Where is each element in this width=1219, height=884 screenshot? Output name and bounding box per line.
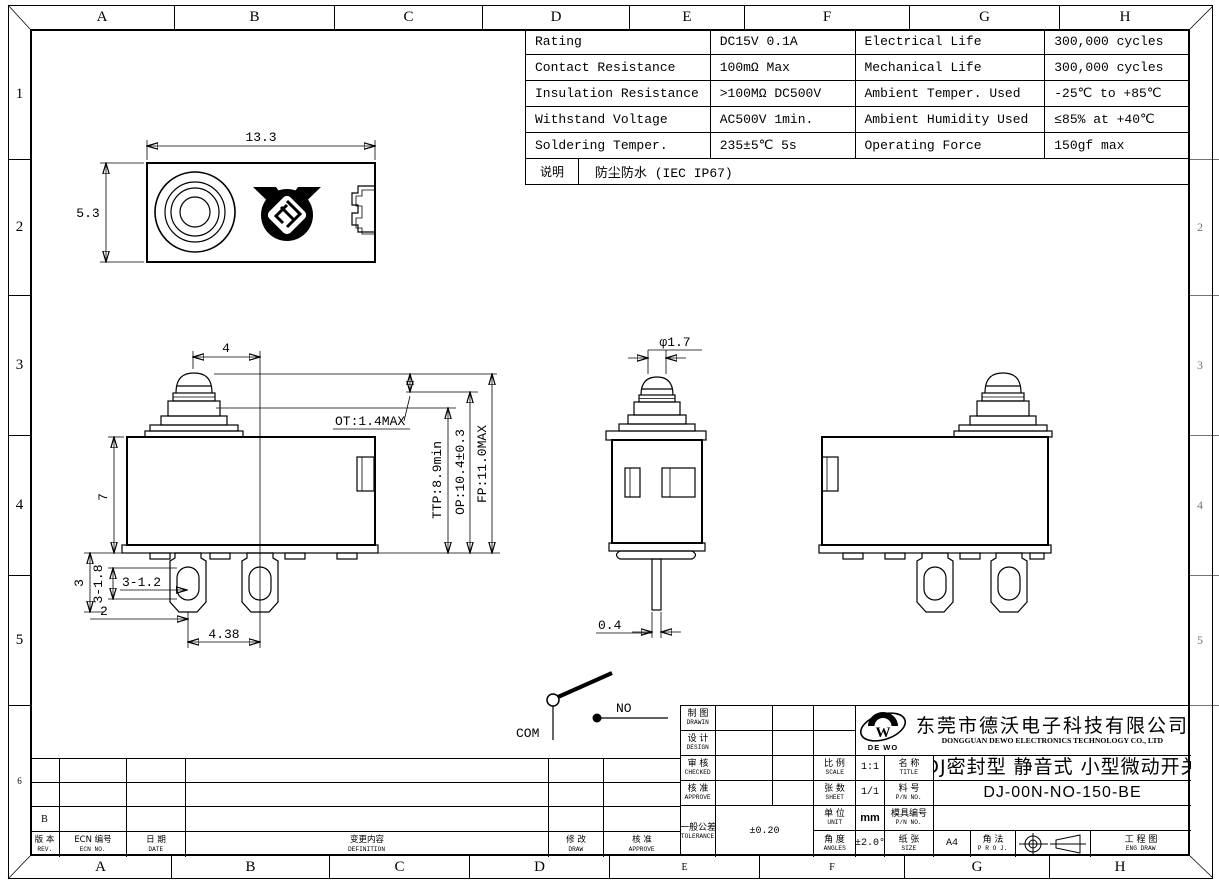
company-block: W DE WO 东莞市德沃电子科技有限公司 DONGGUAN DEWO ELEC… (856, 706, 1191, 756)
spec-param: Contact Resistance (526, 55, 711, 81)
header-label-en: DRAW (569, 846, 584, 853)
field-title: 名 称 TITLE (885, 756, 934, 781)
paper-value: A4 (934, 831, 971, 857)
spec-value: >100MΩ DC500V (711, 81, 856, 107)
field-label-cn: 纸 张 (899, 835, 920, 845)
header-label-cn: 日 期 (146, 836, 166, 845)
spec-param: Withstand Voltage (526, 107, 711, 133)
field-label-en: UNIT (827, 820, 842, 827)
field-label-en: TITLE (900, 770, 919, 777)
grid-label: 2 (9, 160, 30, 296)
grid-label: F (745, 6, 910, 29)
field-design: 设 计 DESIGN (681, 731, 716, 756)
field-label-en: DESIGN (687, 745, 709, 752)
field-label-en: P/N NO. (896, 820, 922, 827)
field-label-en: SCALE (825, 770, 844, 777)
field-eng-draw: 工 程 图 ENG DRAW (1091, 831, 1191, 857)
field-label-en: DRAWIN (687, 720, 709, 727)
spec-param: Ambient Temper. Used (856, 81, 1046, 107)
field-scale: 比 例 SCALE (814, 756, 856, 781)
sheet-value: 1/1 (856, 781, 885, 806)
tolerance-value: ±0.20 (716, 806, 814, 857)
revision-cell (186, 807, 549, 832)
signature-cell (773, 731, 814, 756)
signature-cell (773, 756, 814, 781)
spec-param: Rating (526, 29, 711, 55)
grid-label: H (1060, 6, 1190, 29)
field-unit: 单 位 UNIT (814, 806, 856, 831)
grid-label: G (905, 856, 1050, 878)
grid-label: B (172, 856, 330, 878)
header-label-cn: 核 准 (632, 836, 652, 845)
field-sheet: 张 数 SHEET (814, 781, 856, 806)
spec-value: 300,000 cycles (1045, 29, 1190, 55)
revision-header-definition: 变更内容 DEFINITION (186, 832, 549, 857)
field-label-cn: 一般公差 (681, 823, 716, 833)
grid-label: 5 (9, 576, 30, 706)
third-angle-projection-icon (1018, 832, 1088, 856)
spec-param: Electrical Life (856, 29, 1046, 55)
header-label-en: APPROVE (629, 846, 655, 853)
header-label-cn: 版 本 (35, 836, 55, 845)
header-label-cn: 变更内容 (350, 836, 384, 845)
signature-cell (716, 706, 773, 731)
revision-cell (30, 759, 60, 783)
revision-header-date: 日 期 DATE (127, 832, 186, 857)
field-label-cn: 核 准 (688, 784, 709, 794)
spec-value: 235±5℃ 5s (711, 133, 856, 159)
note-row: 说明 防尘防水 (IEC IP67) (526, 159, 1190, 185)
revision-cell (30, 783, 60, 807)
revision-cell (186, 783, 549, 807)
grid-label: B (175, 6, 335, 29)
spec-value: ≤85% at +40℃ (1045, 107, 1190, 133)
grid-label: C (330, 856, 470, 878)
revision-cell (604, 807, 680, 832)
field-label-cn: 角 度 (824, 835, 845, 845)
field-label-cn: 比 例 (824, 759, 845, 769)
field-projection: 角 法 P R O J. (971, 831, 1016, 857)
table-row: Withstand Voltage AC500V 1min. Ambient H… (526, 107, 1190, 133)
spec-value: 100mΩ Max (711, 55, 856, 81)
field-label-cn: 模具编号 (891, 809, 927, 819)
revision-cell (127, 807, 186, 832)
grid-label: D (483, 6, 630, 29)
signature-cell (773, 706, 814, 731)
field-label-cn: 张 数 (824, 784, 845, 794)
field-approve: 核 准 APPROVE (681, 781, 716, 806)
title-block: 制 图 DRAWIN W DE WO 东莞市德沃电子科技有限公司 DONGGUA… (680, 705, 1190, 856)
spec-value: -25℃ to +85℃ (1045, 81, 1190, 107)
revision-header-rev: 版 本 REV. (30, 832, 60, 857)
company-name-en: DONGGUAN DEWO ELECTRONICS TECHNOLOGY CO.… (942, 737, 1163, 745)
grid-label: H (1050, 856, 1190, 878)
field-label-en: SHEET (825, 795, 844, 802)
note-label: 说明 (526, 159, 579, 185)
field-label-en: ENG DRAW (1126, 846, 1156, 853)
table-row: Contact Resistance 100mΩ Max Mechanical … (526, 55, 1190, 81)
field-pn: 料 号 P/N NO. (885, 781, 934, 806)
signature-cell (716, 731, 773, 756)
logo-subtext: DE WO (868, 743, 898, 752)
field-checked: 审 核 CHECKED (681, 756, 716, 781)
signature-cell (814, 731, 856, 756)
grid-label (1190, 706, 1219, 856)
signature-cell (716, 781, 773, 806)
grid-ruler-bottom: A B C D E F G H (30, 856, 1190, 878)
revision-header-approve: 核 准 APPROVE (604, 832, 680, 857)
revision-cell (549, 807, 604, 832)
grid-ruler-left: 1 2 3 4 5 6 (9, 29, 30, 856)
field-angles: 角 度 ANGLES (814, 831, 856, 857)
company-name-cn: 东莞市德沃电子科技有限公司 (916, 716, 1189, 737)
field-label-en: APPROVE (685, 795, 711, 802)
angles-value: ±2.0° (856, 831, 885, 857)
spec-table: Rating DC15V 0.1A Electrical Life 300,00… (525, 29, 1190, 185)
grid-label: 5 (1190, 576, 1219, 706)
signature-cell (773, 781, 814, 806)
field-label-cn: 制 图 (688, 709, 709, 719)
grid-label: G (910, 6, 1060, 29)
grid-label: A (30, 856, 172, 878)
header-label-cn: 修 改 (566, 836, 586, 845)
grid-label: F (760, 856, 905, 878)
grid-label: 2 (1190, 160, 1219, 296)
spec-value: 300,000 cycles (1045, 55, 1190, 81)
dewo-logo: W DE WO (858, 709, 910, 753)
scale-value: 1:1 (856, 756, 885, 781)
mold-value (934, 806, 1191, 831)
signature-cell (814, 706, 856, 731)
grid-label: E (610, 856, 760, 878)
spec-param: Mechanical Life (856, 55, 1046, 81)
field-mold: 模具编号 P/N NO. (885, 806, 934, 831)
revision-cell (127, 783, 186, 807)
field-label-en: CHECKED (685, 770, 711, 777)
header-label-cn: ECN 编号 (74, 836, 111, 845)
field-label-en: SIZE (902, 846, 917, 853)
grid-label: C (335, 6, 483, 29)
revision-header-draw: 修 改 DRAW (549, 832, 604, 857)
spec-param: Soldering Temper. (526, 133, 711, 159)
revision-cell (60, 759, 127, 783)
revision-cell (604, 759, 680, 783)
revision-cell (60, 783, 127, 807)
table-row: Soldering Temper. 235±5℃ 5s Operating Fo… (526, 133, 1190, 159)
signature-cell (716, 756, 773, 781)
grid-label: 3 (9, 296, 30, 436)
field-label-en: P/N NO. (896, 795, 922, 802)
note-value: 防尘防水 (IEC IP67) (579, 159, 1190, 185)
field-label-cn: 审 核 (688, 759, 709, 769)
revision-header-ecn: ECN 编号 ECN NO. (60, 832, 127, 857)
revision-rev-value: B (30, 807, 60, 832)
drawing-sheet: 13.3 5.3 (0, 0, 1219, 884)
spec-param: Insulation Resistance (526, 81, 711, 107)
grid-label: A (30, 6, 175, 29)
grid-label: E (630, 6, 745, 29)
field-label-cn: 单 位 (824, 809, 845, 819)
revision-cell (127, 759, 186, 783)
grid-label: 3 (1190, 296, 1219, 436)
spec-value: DC15V 0.1A (711, 29, 856, 55)
header-label-en: REV. (37, 846, 52, 853)
field-paper: 纸 张 SIZE (885, 831, 934, 857)
header-label-en: DEFINITION (348, 846, 385, 853)
field-label-cn: 设 计 (688, 734, 709, 744)
grid-label: D (470, 856, 610, 878)
grid-label (1190, 29, 1219, 160)
unit-value: mm (856, 806, 885, 831)
grid-label: 4 (9, 436, 30, 576)
grid-ruler-right: 2 3 4 5 (1190, 29, 1219, 856)
spec-value: AC500V 1min. (711, 107, 856, 133)
table-row: Rating DC15V 0.1A Electrical Life 300,00… (526, 29, 1190, 55)
field-label-en: ANGLES (823, 846, 845, 853)
field-label-cn: 工 程 图 (1125, 835, 1158, 845)
field-label-cn: 角 法 (983, 835, 1004, 845)
spec-param: Ambient Humidity Used (856, 107, 1046, 133)
projection-symbol-cell (1016, 831, 1091, 857)
grid-label: 4 (1190, 436, 1219, 576)
logo-letter: W (875, 725, 890, 741)
revision-cell (186, 759, 549, 783)
drawing-title: DJ密封型 静音式 小型微动开关 (934, 756, 1191, 781)
field-tolerance: 一般公差 TOLERANCE (681, 806, 716, 857)
table-row: Insulation Resistance >100MΩ DC500V Ambi… (526, 81, 1190, 107)
revision-cell (60, 807, 127, 832)
field-label-cn: 名 称 (899, 759, 920, 769)
spec-param: Operating Force (856, 133, 1046, 159)
header-label-en: DATE (149, 846, 164, 853)
field-label-en: TOLERANCE (681, 833, 714, 840)
revision-cell (604, 783, 680, 807)
grid-label: 6 (9, 706, 30, 856)
revision-table: B 版 本 REV. ECN 编号 ECN NO. 日 期 DATE 变更内容 … (30, 758, 680, 856)
field-drawn: 制 图 DRAWIN (681, 706, 716, 731)
header-label-en: ECN NO. (80, 846, 106, 853)
spec-value: 150gf max (1045, 133, 1190, 159)
grid-ruler-top: A B C D E F G H (30, 6, 1190, 29)
revision-cell (549, 759, 604, 783)
grid-label: 1 (9, 29, 30, 160)
field-label-cn: 料 号 (899, 784, 920, 794)
field-label-en: P R O J. (978, 846, 1008, 853)
revision-cell (549, 783, 604, 807)
part-number: DJ-00N-NO-150-BE (934, 781, 1191, 806)
